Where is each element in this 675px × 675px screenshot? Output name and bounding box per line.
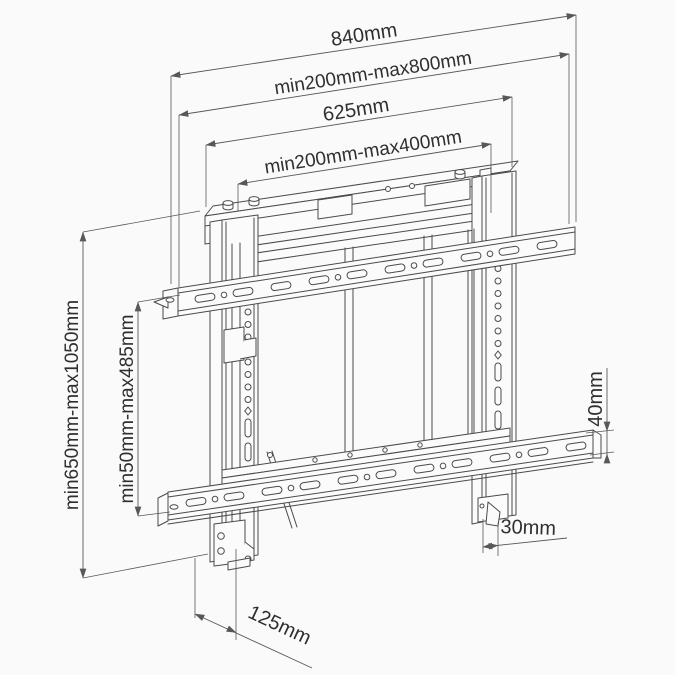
mount-drawing	[154, 161, 601, 570]
dim-vesa-height-range: min50mm-max485mm	[117, 295, 180, 516]
dim-label-vesa-height-range: min50mm-max485mm	[117, 315, 138, 504]
dim-label-bottom-offset: 30mm	[500, 516, 556, 540]
bolt-icon	[249, 197, 259, 206]
dim-label-overall-width: 840mm	[329, 19, 398, 51]
bolt-icon	[223, 201, 233, 210]
dim-label-rail-height: 40mm	[585, 371, 607, 427]
dim-label-vesa-width-range: min200mm-max400mm	[263, 127, 463, 179]
dim-label-depth: 125mm	[245, 601, 315, 649]
dim-label-overall-height-range: min650mm-max1050mm	[62, 300, 83, 510]
dim-depth: 125mm	[195, 549, 314, 668]
wall-mount-technical-drawing: 840mm min200mm-max800mm 625mm min200mm-m…	[0, 0, 675, 675]
dimension-annotations: 840mm min200mm-max800mm 625mm min200mm-m…	[62, 15, 614, 668]
bolt-icon	[455, 170, 465, 179]
